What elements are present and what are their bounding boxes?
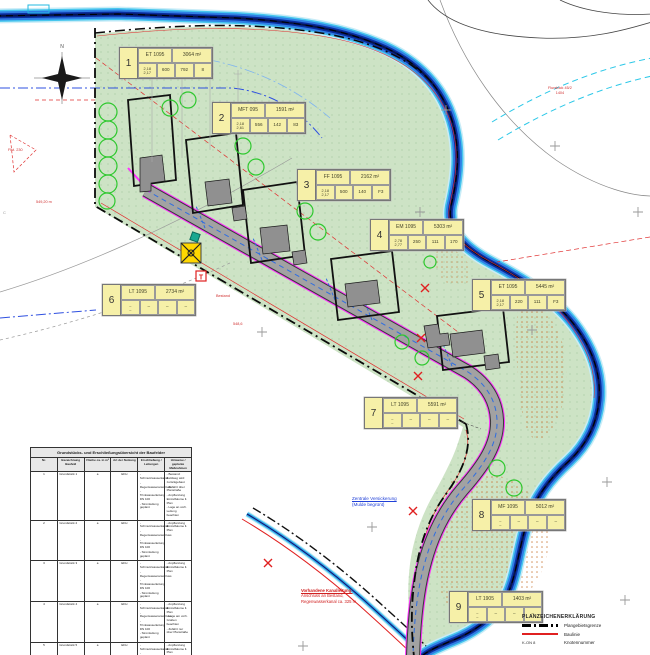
table-row: 3Grundstück 3aEFH- Schmutzwasserkanal- R… [31,561,192,602]
lot-value: – [140,300,159,315]
table-row: 4Grundstück 4aEFH- Schmutzwasserkanal- R… [31,602,192,643]
lot-value: –– [491,515,510,530]
lot-number: 2 [213,103,231,133]
lot-value: – [528,515,547,530]
lot-value: 792 [175,63,194,78]
corner-mark: C [3,210,6,215]
lot-value: – [420,413,439,428]
lot-id: ET 1095 [138,48,172,63]
lot-label-7: 7LT 10955591 m²––––– [364,397,458,429]
lot-value: F3 [547,295,566,310]
lot-id: MF 1095 [491,500,525,515]
lot-value: – [402,413,421,428]
site-table: Grundstücks- und Erschließungsübersicht … [30,447,192,655]
lot-label-6: 6LT 10952734 m²––––– [102,284,196,316]
lot-value: 2,182,17 [138,63,157,78]
table-row: 2Grundstück 2aEFH- Schmutzwasserkanal- R… [31,520,192,561]
redline-swatch [522,633,558,635]
lot-number: 1 [120,48,138,78]
table-row: 5Grundstück 5aEFH- Schmutzwasserkanal- R… [31,642,192,655]
lot-value: 500 [335,185,354,200]
lot-number: 6 [103,285,121,315]
lot-area: 1403 m² [502,592,542,607]
legend-item-node: K-ON 8Knotennummer [522,640,648,645]
lot-value: 2,782,77 [389,235,408,250]
lot-value: 140 [353,185,372,200]
lot-id: LT 1905 [468,592,502,607]
lot-label-1: 1ET 10953064 m²2,182,176007928 [119,47,213,79]
lot-area: 1591 m² [265,103,305,118]
table-column-header: Erschließung / Leitungen [138,458,165,472]
spot-height-label: 548,6 [233,322,243,326]
boundary-swatch [522,624,558,627]
lot-label-3: 3FF 10952162 m²2,182,17500140F3 [297,169,391,201]
parcel-left-label: Flst. 230 [8,148,23,152]
lot-number: 7 [365,398,383,428]
lot-value: 142 [268,118,287,133]
lot-value: – [505,607,524,622]
map-legend: PLANZEICHENERKLÄRUNG PlangebietsgrenzeBa… [522,614,648,649]
lot-value: 2,182,17 [316,185,335,200]
compass-rose: N [34,44,90,104]
lot-area: 5591 m² [417,398,457,413]
lot-number: 9 [450,592,468,622]
lot-id: LT 1095 [121,285,155,300]
site-plan-page: T N 1ET 10953064 m²2,182,1760079282MFT 0… [0,0,650,655]
transformer-symbol: T [196,271,206,282]
lot-value: 170 [445,235,464,250]
lot-value: 111 [528,295,547,310]
lot-value: 600 [157,63,176,78]
lot-value: 8 [194,63,213,78]
lot-value: – [158,300,177,315]
lot-area: 5303 m² [423,220,463,235]
lot-value: 220 [510,295,529,310]
lot-label-5: 5ET 10955445 m²2,182,17220111F3 [472,279,566,311]
lot-value: –– [383,413,402,428]
lot-area: 5012 m² [525,500,565,515]
lot-value: 111 [426,235,445,250]
lot-value: 2,182,17 [491,295,510,310]
table-column-header: Art der Nutzung [111,458,138,472]
lot-value: –– [121,300,140,315]
table-title: Grundstücks- und Erschließungsübersicht … [31,448,192,458]
lot-value: 556 [250,118,269,133]
lot-area: 5445 m² [525,280,565,295]
infiltration-note: Zentrale Versickerung(Mulde begrünt) [352,496,397,507]
legend-item-boundary: Plangebietsgrenze [522,623,648,628]
lot-area: 2162 m² [350,170,390,185]
svg-text:T: T [199,275,204,282]
lot-id: FF 1095 [316,170,350,185]
bestand-label: Bestand [216,294,230,298]
lot-label-8: 8MF 10955012 m²––––– [472,499,566,531]
table-row: 1Grundstück 1aEFH- Schmutzwasserkanal- R… [31,472,192,520]
lot-label-2: 2MFT 0951591 m²2,182,6155614283 [212,102,306,134]
sewer-note: Vorhandene Kanalleitung:Anschluss an Bes… [301,588,356,604]
table-column-header: Hinweise / geplante Maßnahmen [165,458,192,472]
parcel-right-note: Flurstück 45/21404 [548,86,572,95]
lot-value: – [487,607,506,622]
legend-title: PLANZEICHENERKLÄRUNG [522,614,648,620]
lot-value: – [510,515,529,530]
lot-number: 5 [473,280,491,310]
lot-value: –– [468,607,487,622]
lot-id: ET 1095 [491,280,525,295]
lot-number: 4 [371,220,389,250]
lot-label-4: 4EM 10955303 m²2,782,77250111170 [370,219,464,251]
ditch-lines [242,508,426,655]
lot-value: – [547,515,566,530]
elevation-label: 549,20 m [36,200,52,204]
lot-value: 83 [287,118,306,133]
hydrant-symbol [181,243,201,263]
lot-value: 2,182,61 [231,118,250,133]
table-column-header: Fläche ca. in m² [84,458,111,472]
compass-north-label: N [60,44,64,50]
lot-value: – [439,413,458,428]
cyan-contours [492,58,650,140]
lot-id: LT 1095 [383,398,417,413]
lot-value: F3 [372,185,391,200]
lot-value: – [177,300,196,315]
lot-value: 250 [408,235,427,250]
table-column-header: Bezeichnung Baufeld [57,458,84,472]
lot-number: 3 [298,170,316,200]
table-column-header: Nr. [31,458,58,472]
legend-item-redline: Baulinie [522,632,648,637]
lot-id: EM 1095 [389,220,423,235]
lot-number: 8 [473,500,491,530]
lot-id: MFT 095 [231,103,265,118]
lot-area: 2734 m² [155,285,195,300]
lot-area: 3064 m² [172,48,212,63]
